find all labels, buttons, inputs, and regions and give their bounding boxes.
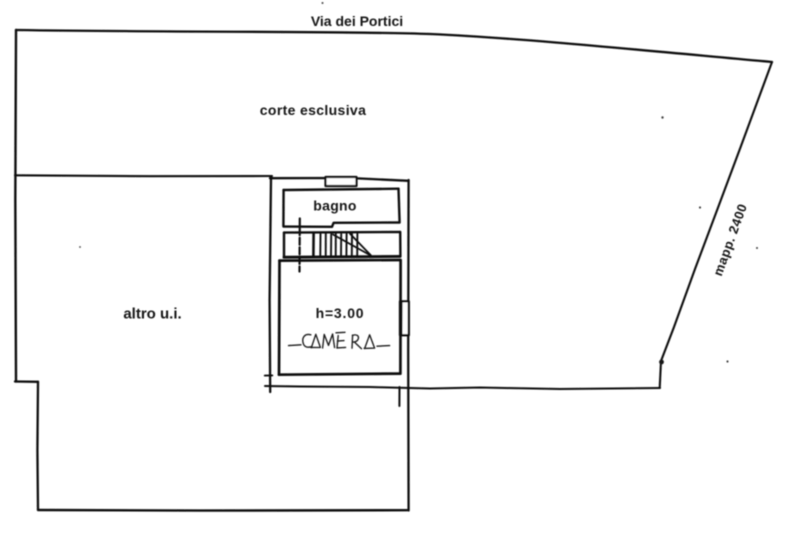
svg-text:h=3.00: h=3.00 [316,305,365,321]
svg-text:altro u.i.: altro u.i. [123,305,181,322]
svg-text:Via dei Portici: Via dei Portici [311,13,403,29]
svg-text:bagno: bagno [313,198,357,214]
svg-text:corte esclusiva: corte esclusiva [260,102,366,118]
